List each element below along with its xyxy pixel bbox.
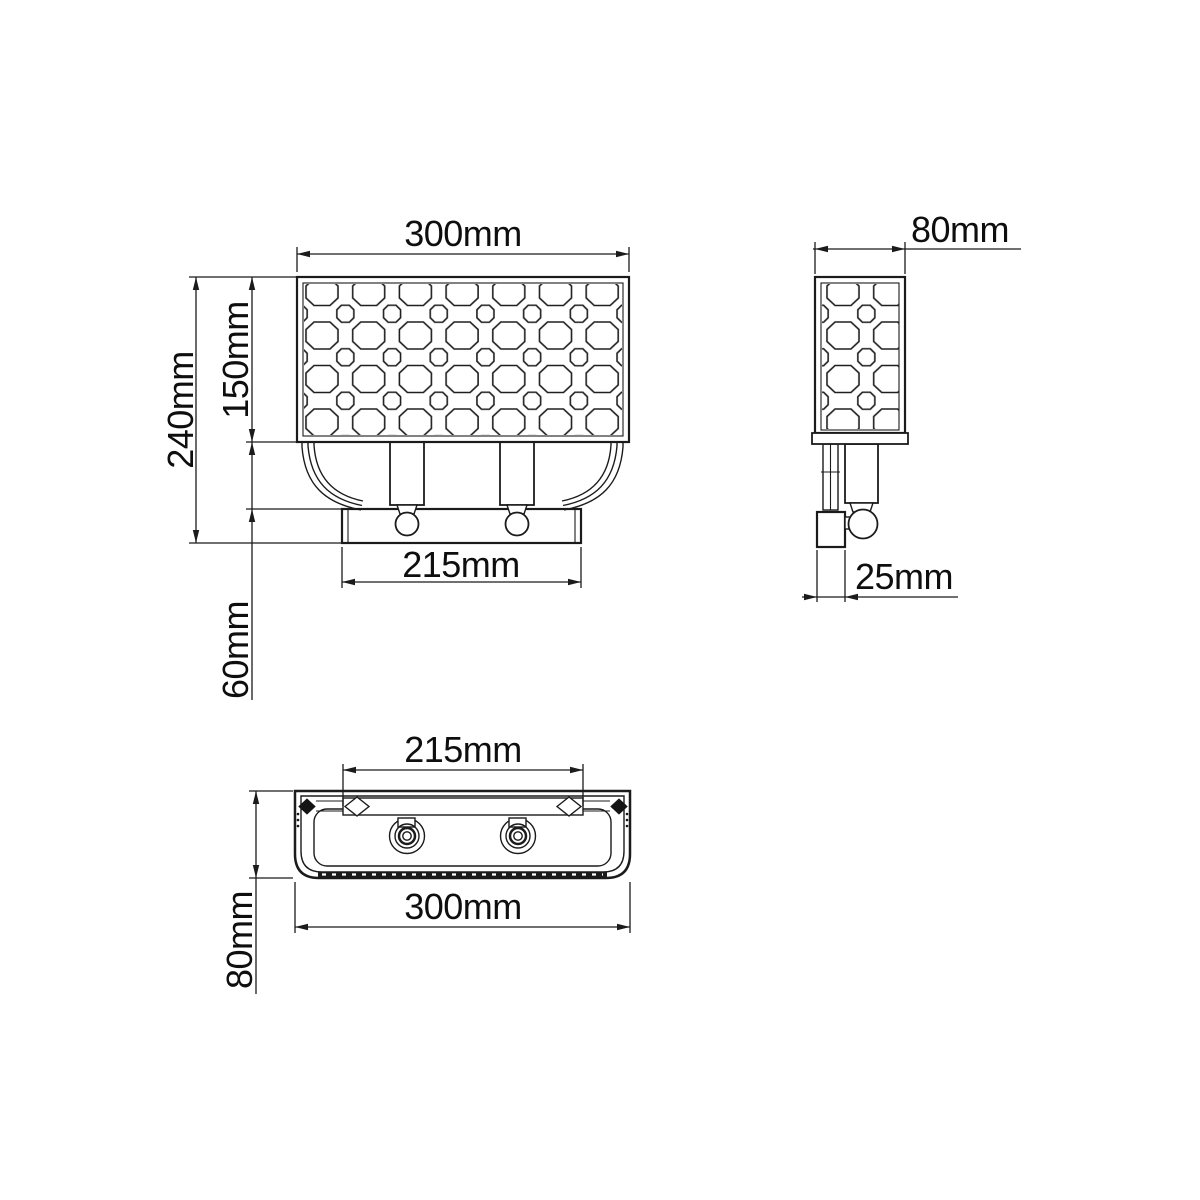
side-candle xyxy=(845,444,878,503)
front-width-label: 300mm xyxy=(404,213,522,254)
front-left-arm xyxy=(302,442,363,510)
front-backplate xyxy=(342,509,581,543)
front-left-stem xyxy=(390,442,424,505)
dimension-bottom-width: 300mm xyxy=(295,882,630,933)
dimension-side-depth: 80mm xyxy=(813,209,1021,274)
bottom-socket-left xyxy=(390,818,425,854)
front-shade-fretwork xyxy=(304,284,622,435)
dimension-bottom-mount-bar-width: 215mm xyxy=(343,729,583,806)
dimension-front-shade-height: 150mm xyxy=(215,277,299,442)
bottom-width-label: 300mm xyxy=(404,886,522,927)
bottom-mount-bar xyxy=(343,798,583,815)
front-view xyxy=(297,277,629,543)
bottom-depth-label: 80mm xyxy=(219,891,260,989)
side-shade-bottom-rim xyxy=(812,433,908,444)
bottom-diffuser xyxy=(314,809,611,866)
side-wall-box xyxy=(817,512,845,547)
side-wall-box-depth-label: 25mm xyxy=(855,556,953,597)
bottom-view xyxy=(295,791,630,878)
side-shade-fretwork xyxy=(822,284,899,429)
side-bulb-holder xyxy=(849,510,878,539)
dimension-front-backplate-width: 215mm xyxy=(342,544,581,588)
bottom-mount-bar-width-label: 215mm xyxy=(404,729,522,770)
front-right-bulb-holder xyxy=(506,513,529,536)
wall-light-dimension-drawing: 300mm 240mm 150mm 60mm 215mm xyxy=(0,0,1200,1200)
front-arm-height-label: 60mm xyxy=(215,601,256,699)
front-left-bulb-holder xyxy=(396,513,419,536)
dimension-bottom-depth: 80mm xyxy=(219,791,293,994)
front-shade-height-label: 150mm xyxy=(215,301,256,419)
front-right-arm xyxy=(562,442,623,510)
front-right-stem xyxy=(500,442,534,505)
dimension-side-wall-box-depth: 25mm xyxy=(802,550,958,602)
side-view xyxy=(812,277,908,547)
front-total-height-label: 240mm xyxy=(160,351,201,469)
bottom-socket-right xyxy=(501,818,536,854)
front-backplate-width-label: 215mm xyxy=(402,544,520,585)
dimension-front-width: 300mm xyxy=(297,213,629,272)
dimension-front-arm-height: 60mm xyxy=(215,442,344,700)
technical-drawing-page: 300mm 240mm 150mm 60mm 215mm xyxy=(0,0,1200,1200)
side-depth-label: 80mm xyxy=(911,209,1009,250)
